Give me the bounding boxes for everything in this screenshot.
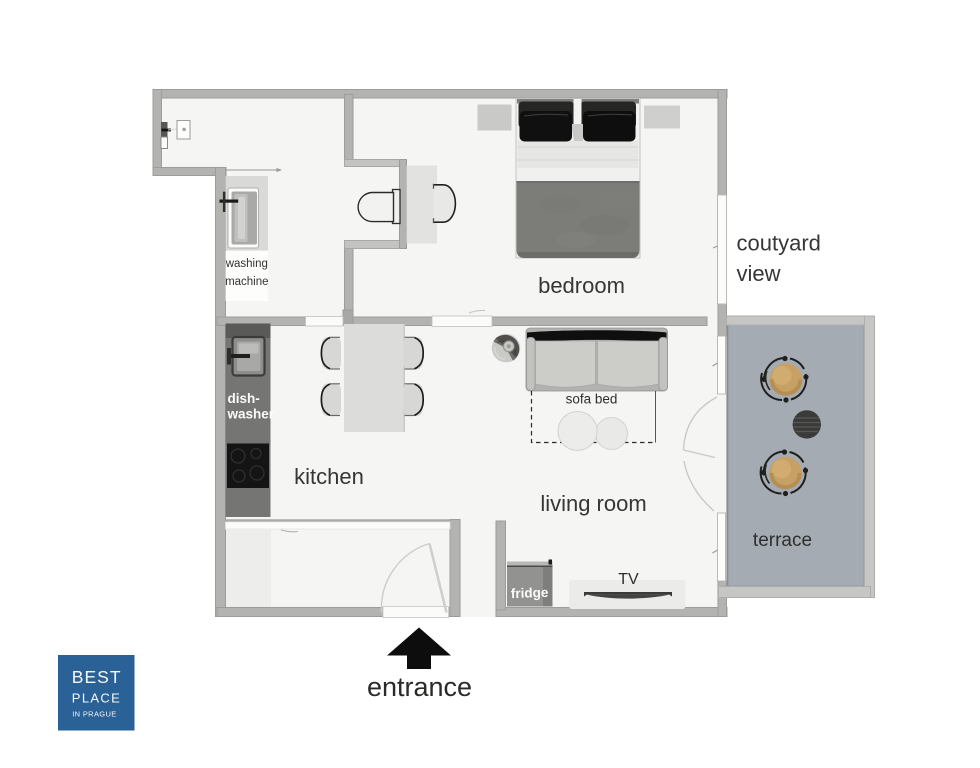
svg-text:washing: washing [225, 258, 268, 270]
svg-text:BEST: BEST [72, 667, 122, 687]
svg-text:living room: living room [540, 491, 646, 516]
svg-text:fridge: fridge [511, 585, 549, 601]
svg-text:IN PRAGUE: IN PRAGUE [72, 710, 116, 719]
svg-text:machine: machine [225, 276, 268, 288]
svg-text:sofa bed: sofa bed [566, 392, 618, 407]
svg-text:terrace: terrace [753, 530, 812, 551]
svg-text:view: view [737, 261, 781, 286]
svg-text:TV: TV [618, 571, 639, 588]
svg-text:dish-: dish- [228, 391, 260, 406]
svg-text:washer: washer [227, 407, 275, 422]
svg-text:kitchen: kitchen [294, 464, 364, 489]
svg-text:bedroom: bedroom [538, 273, 625, 298]
svg-text:coutyard: coutyard [737, 231, 821, 256]
svg-text:entrance: entrance [367, 672, 472, 702]
svg-text:PLACE: PLACE [72, 691, 121, 706]
